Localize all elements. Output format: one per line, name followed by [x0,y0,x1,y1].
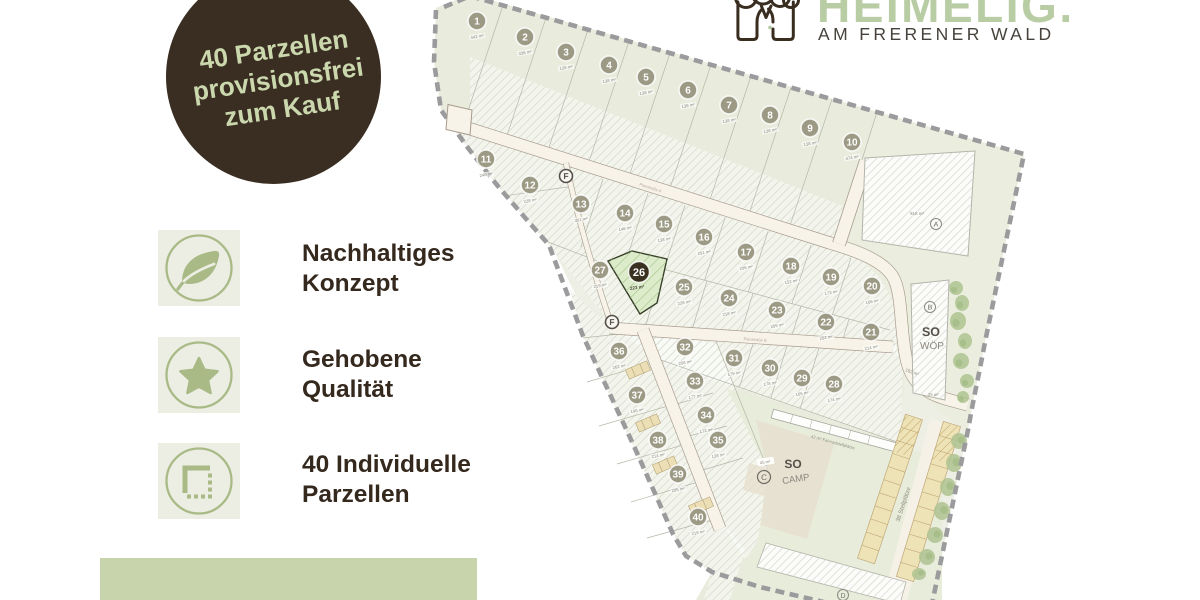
svg-text:F: F [609,317,614,327]
svg-text:C: C [761,473,767,482]
svg-text:A: A [934,222,939,229]
svg-text:40: 40 [692,513,704,524]
svg-text:8: 8 [767,111,773,122]
svg-text:1: 1 [474,17,480,28]
svg-text:20: 20 [866,282,878,293]
svg-text:18: 18 [785,262,797,273]
svg-text:B: B [928,305,933,312]
svg-text:32: 32 [679,343,691,354]
svg-text:35: 35 [712,436,724,447]
svg-text:33: 33 [689,377,701,388]
svg-text:37: 37 [631,391,643,402]
svg-text:25: 25 [678,283,690,294]
svg-text:5: 5 [643,73,649,84]
svg-text:38: 38 [652,436,664,447]
svg-text:22: 22 [820,318,832,329]
svg-text:24: 24 [723,294,735,305]
svg-text:11: 11 [481,155,492,166]
svg-text:9: 9 [807,124,813,135]
svg-text:4: 4 [606,61,612,72]
svg-text:WÖP: WÖP [920,340,944,352]
svg-text:25 m²: 25 m² [928,392,939,397]
svg-text:23: 23 [771,306,783,317]
svg-text:19: 19 [825,273,837,284]
svg-text:3: 3 [563,48,569,59]
svg-text:16: 16 [698,233,710,244]
svg-text:15: 15 [658,220,670,231]
svg-text:7: 7 [726,101,732,112]
svg-text:28: 28 [828,380,840,391]
svg-text:30: 30 [764,364,776,375]
svg-text:34: 34 [700,411,712,422]
svg-text:D: D [840,593,845,600]
svg-text:SO: SO [784,457,801,471]
svg-text:13: 13 [575,200,587,211]
svg-text:17: 17 [740,248,752,259]
svg-text:31: 31 [728,354,740,365]
svg-text:39: 39 [672,470,684,481]
svg-text:36: 36 [613,347,625,358]
svg-text:29: 29 [796,374,808,385]
svg-text:26: 26 [633,267,645,279]
svg-text:918 m²: 918 m² [910,211,925,216]
svg-text:2: 2 [522,33,528,44]
svg-text:21: 21 [865,328,877,339]
svg-text:12: 12 [524,181,536,192]
svg-text:6: 6 [685,86,691,97]
svg-text:SO: SO [922,325,940,339]
svg-text:F: F [563,171,568,181]
svg-text:10: 10 [846,138,858,149]
svg-text:27: 27 [594,266,606,277]
svg-text:14: 14 [619,209,631,220]
